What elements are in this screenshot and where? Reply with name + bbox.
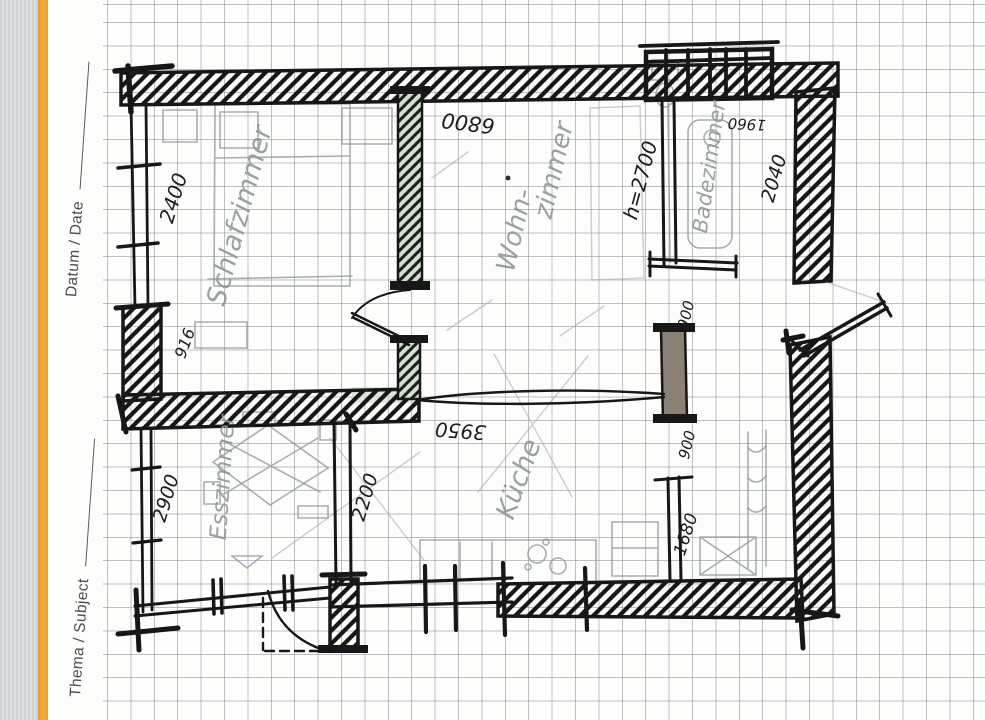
dimension-1960: 1960	[727, 114, 766, 134]
kitchen-pier	[330, 579, 358, 650]
room-label-kueche: Küche	[490, 435, 547, 523]
dimension-1680: 1680	[670, 511, 702, 558]
entrance-door-trace	[826, 282, 878, 300]
wide-opening-lens	[417, 391, 664, 404]
bedroom-door-leaf	[352, 313, 409, 345]
dimension-916: 916	[171, 326, 199, 361]
dining-left-wall	[141, 429, 152, 612]
label-group: Schlafzimmer Wohn- zimmer Badezimmer Küc…	[149, 98, 792, 558]
bedroom-door-swing	[352, 290, 410, 318]
room-label-wohnzimmer-line2: zimmer	[528, 117, 580, 223]
masonry-pier	[661, 328, 687, 421]
dimension-6800: 6800	[440, 108, 496, 138]
window-ticks	[118, 164, 160, 247]
green-partition-lower	[398, 339, 420, 399]
right-wall-upper	[794, 88, 835, 283]
room-label-schlafzimmer: Schlafzimmer	[201, 121, 279, 309]
room-label-esszimmer: Esszimmer	[206, 413, 241, 541]
pier-cap	[653, 414, 697, 423]
bedroom-left-wall	[131, 104, 148, 308]
dimension-2400: 2400	[154, 170, 192, 226]
dimension-3950: 3950	[434, 417, 486, 444]
partition-cap	[390, 86, 430, 94]
left-pier-wall	[123, 305, 161, 401]
dining-window-rails	[135, 587, 330, 616]
wall-shading	[668, 103, 670, 262]
floor-plan-sketch: Schlafzimmer Wohn- zimmer Badezimmer Küc…	[0, 0, 985, 720]
dimension-2900: 2900	[149, 472, 184, 525]
corner-mark	[118, 590, 178, 650]
dimension-2200: 2200	[348, 471, 383, 524]
scanned-notebook-page: Datum / Date Thema / Subject	[0, 0, 985, 720]
green-partition-upper	[398, 91, 422, 287]
height-note: h=2700	[618, 138, 662, 222]
dimension-2040: 2040	[757, 152, 791, 205]
partition-cap	[390, 281, 430, 290]
room-label-badezimmer: Badezimmer	[688, 98, 730, 234]
dimension-900-lower: 900	[675, 429, 699, 461]
bottom-wall-hatched	[498, 579, 803, 618]
bath-wall-foot	[649, 252, 737, 277]
interior-wall-horizontal	[123, 389, 419, 429]
